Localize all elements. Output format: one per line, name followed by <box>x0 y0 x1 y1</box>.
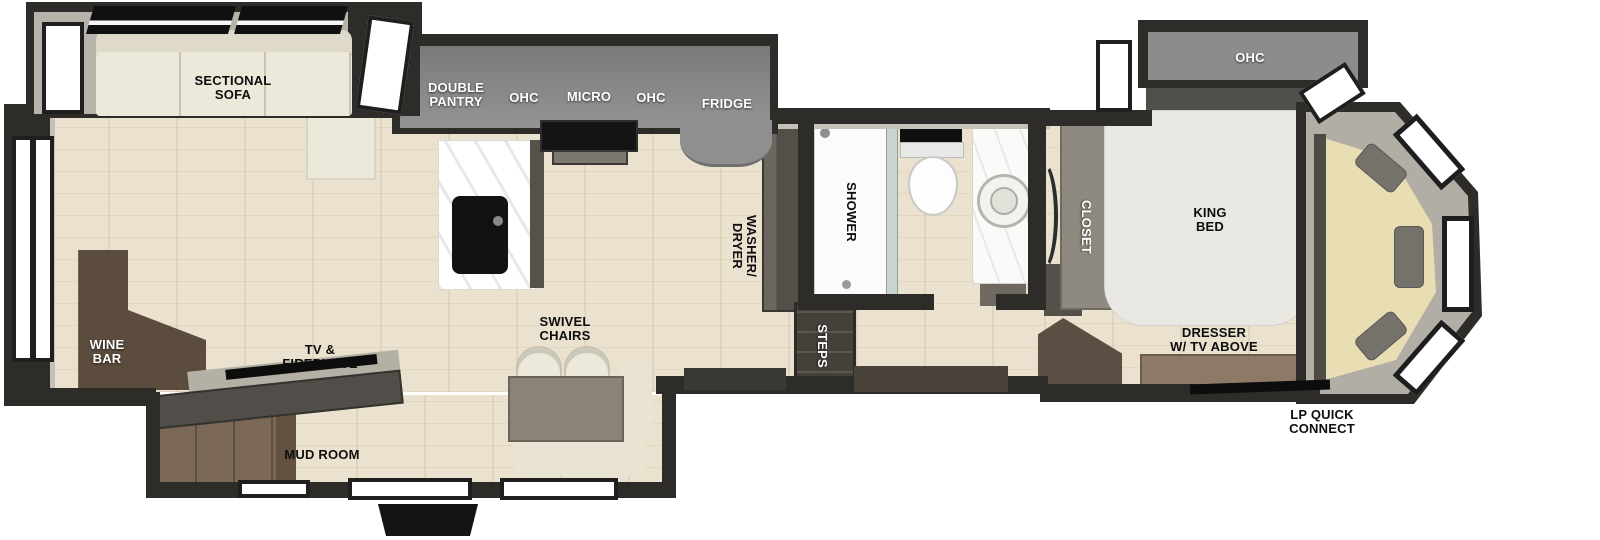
label-wine-bar: WINE BAR <box>90 338 125 366</box>
bench-pillow-middle <box>1394 226 1424 288</box>
mudroom-window-left <box>238 480 310 498</box>
bathroom-left-wall <box>798 108 814 310</box>
hallway-bench-left <box>684 368 786 390</box>
bedroom-window-left <box>1096 40 1132 112</box>
mudroom-window-right <box>500 478 618 500</box>
label-steps: STEPS <box>815 324 829 368</box>
bottom-wall-left <box>4 388 156 406</box>
chair-platform <box>514 436 644 476</box>
label-micro: MICRO <box>567 90 611 104</box>
label-ohc-bedroom: OHC <box>1235 51 1265 65</box>
label-sectional-sofa: SECTIONAL SOFA <box>195 74 272 102</box>
label-tv-fireplace: TV & FIREPLACE <box>282 343 357 371</box>
sink-faucet <box>493 216 503 226</box>
front-cap <box>1290 94 1490 410</box>
hallway-bench-right <box>854 366 1008 392</box>
mudroom-right-wall <box>662 386 676 498</box>
chair-table <box>508 376 624 442</box>
front-cap-window-middle <box>1442 216 1474 312</box>
bathroom-bottom-wall-right <box>996 294 1046 310</box>
bedroom-top-wall <box>1040 110 1152 126</box>
shower-control <box>842 280 851 289</box>
island-sink <box>452 196 508 274</box>
shower-head <box>820 128 830 138</box>
kitchen-island-side <box>530 140 544 288</box>
label-fridge: FRIDGE <box>702 97 752 111</box>
skylight-window-left <box>86 6 236 34</box>
label-dresser-tv: DRESSER W/ TV ABOVE <box>1170 326 1258 354</box>
rv-floorplan: SECTIONAL SOFA DOUBLE PANTRY OHC MICRO O… <box>0 0 1600 540</box>
stove-cooktop <box>540 120 638 152</box>
rear-window-right <box>32 136 54 362</box>
label-ohc-right: OHC <box>636 91 666 105</box>
label-closet: CLOSET <box>1079 200 1093 254</box>
rear-window-left <box>12 136 34 362</box>
label-king-bed: KING BED <box>1193 206 1226 234</box>
sofa-slide-left-window <box>42 22 84 114</box>
oven-front <box>552 150 628 165</box>
label-ohc-left: OHC <box>509 91 539 105</box>
label-lp-quick-connect: LP QUICK CONNECT <box>1289 408 1355 436</box>
label-shower: SHOWER <box>844 182 858 242</box>
front-cap-bench-edge <box>1314 134 1326 382</box>
label-washer-dryer: WASHER/ DRYER <box>730 215 758 277</box>
bathroom-bottom-wall-left <box>798 294 934 310</box>
chair-platform-side <box>620 364 652 440</box>
entry-step-outside <box>378 504 478 536</box>
skylight-window-right <box>234 6 348 34</box>
bathroom-right-wall <box>1028 108 1046 310</box>
sofa-chaise <box>306 108 376 180</box>
shower-glass-panel <box>886 126 898 300</box>
fridge-front <box>680 120 772 167</box>
label-double-pantry: DOUBLE PANTRY <box>428 81 484 109</box>
mudroom-entry-door <box>348 478 472 500</box>
vanity-sink-basin <box>990 187 1018 215</box>
label-swivel-chairs: SWIVEL CHAIRS <box>539 315 590 343</box>
label-mud-room: MUD ROOM <box>284 448 359 462</box>
